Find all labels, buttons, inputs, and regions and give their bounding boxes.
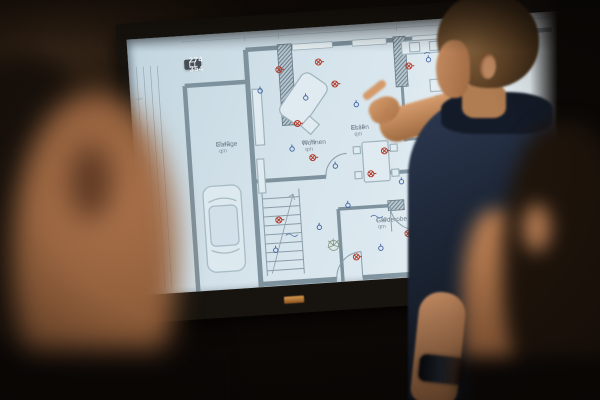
viewer-right-ear [523, 204, 551, 252]
presenter-smartwatch [418, 354, 466, 386]
viewer-foreground-left [0, 55, 210, 400]
presenter-neck [462, 84, 506, 118]
presenter-cheek [436, 40, 470, 98]
viewer-foreground-right [463, 122, 600, 400]
photo-scene: 274 354 Garage 37.40 qm Wohnen 46.79 qm … [0, 0, 600, 400]
viewer-right-shoulder [463, 357, 600, 400]
viewer-left-ear [70, 145, 112, 219]
viewer-left-shoulder [0, 350, 210, 400]
presenter-ear [479, 53, 496, 79]
